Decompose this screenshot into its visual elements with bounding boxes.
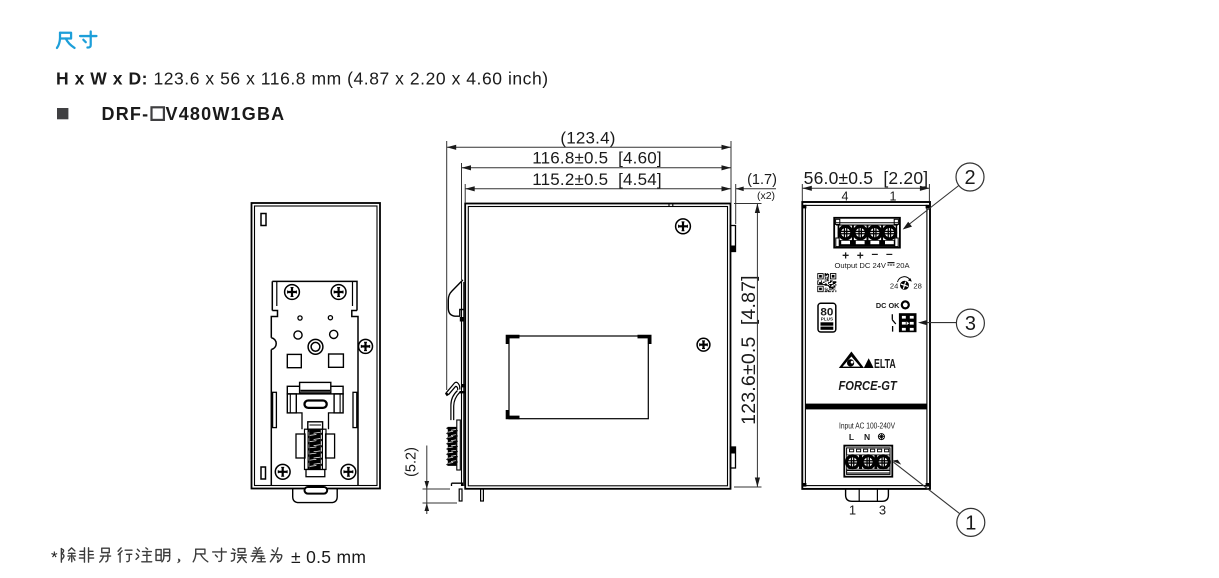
svg-text:DRF-: DRF- <box>102 104 150 124</box>
svg-text:115.2±0.5 [4.54]: 115.2±0.5 [4.54] <box>532 170 662 189</box>
svg-text:56.0±0.5 [2.20]: 56.0±0.5 [2.20] <box>804 168 929 188</box>
svg-text:N: N <box>864 432 870 442</box>
svg-text:(5.2): (5.2) <box>404 447 420 477</box>
svg-text:(x2): (x2) <box>757 190 775 202</box>
svg-text:3: 3 <box>965 313 976 335</box>
svg-text:*: * <box>51 548 58 567</box>
svg-text:Output DC 24V: Output DC 24V <box>835 261 887 270</box>
svg-text:L: L <box>849 432 854 442</box>
svg-text:28: 28 <box>913 282 921 291</box>
svg-text:–: – <box>886 247 893 261</box>
svg-text:3: 3 <box>879 503 886 518</box>
svg-text:1: 1 <box>965 512 976 534</box>
svg-text:DC OK: DC OK <box>876 301 900 310</box>
svg-text:116.8±0.5 [4.60]: 116.8±0.5 [4.60] <box>532 149 662 168</box>
svg-text:Input AC 100-240V: Input AC 100-240V <box>839 422 896 431</box>
svg-text:(123.4): (123.4) <box>560 129 615 148</box>
svg-text:H x W x D: 123.6 x 56 x 116.8: H x W x D: 123.6 x 56 x 116.8 mm (4.87 x… <box>56 69 549 89</box>
svg-text:(1.7): (1.7) <box>747 172 777 188</box>
svg-text:20A: 20A <box>896 261 910 270</box>
svg-text:1: 1 <box>890 190 897 204</box>
svg-text:V480W1GBA: V480W1GBA <box>166 104 286 124</box>
svg-text:PLUS: PLUS <box>821 317 833 322</box>
svg-text:1: 1 <box>849 503 856 518</box>
svg-text:± 0.5 mm: ± 0.5 mm <box>291 547 366 567</box>
svg-text:FORCE-GT: FORCE-GT <box>839 379 898 393</box>
svg-text:4: 4 <box>842 190 849 204</box>
svg-text:2: 2 <box>964 167 975 189</box>
svg-text:24: 24 <box>890 282 898 291</box>
svg-text:123.6±0.5 [4.87]: 123.6±0.5 [4.87] <box>738 275 760 425</box>
svg-text:ELTA: ELTA <box>874 357 896 371</box>
svg-text:–: – <box>871 247 878 261</box>
